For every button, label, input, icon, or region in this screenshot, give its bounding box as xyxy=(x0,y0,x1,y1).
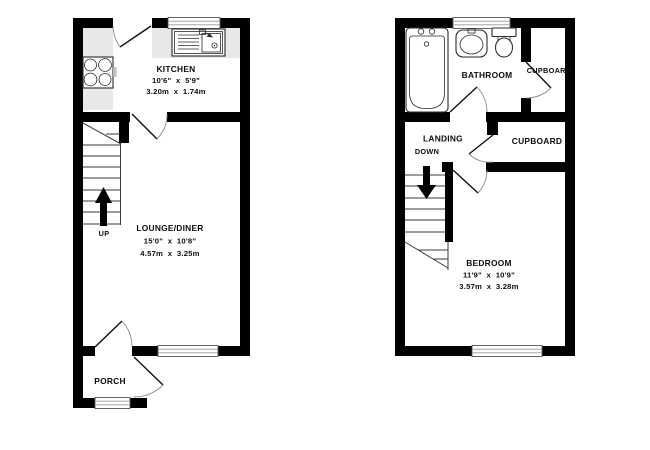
bedroom-door xyxy=(453,170,487,193)
first-floor-plan: BATHROOM CUPBOARD LANDING DOWN CUPBOARD … xyxy=(395,18,575,357)
toilet-icon xyxy=(492,28,516,57)
bathroom-label: BATHROOM xyxy=(462,70,513,80)
down-label: DOWN xyxy=(415,147,439,156)
kitchen-window xyxy=(168,18,220,29)
kitchen-dims-imperial: 10'6" x 5'9" xyxy=(152,76,200,85)
kitchen-door xyxy=(132,114,167,139)
kitchen-dims-metric: 3.20m x 1.74m xyxy=(146,87,205,96)
sink-icon xyxy=(172,29,225,56)
basin-icon xyxy=(456,29,487,58)
lounge-dims-metric: 4.57m x 3.25m xyxy=(140,249,199,258)
porch-label: PORCH xyxy=(94,376,126,386)
lounge-label: LOUNGE/DINER xyxy=(136,223,203,233)
down-arrow-icon xyxy=(417,166,436,199)
cupboard-top-label: CUPBOARD xyxy=(527,66,572,75)
ground-floor-plan: KITCHEN 10'6" x 5'9" 3.20m x 1.74m LOUNG… xyxy=(73,18,250,409)
cupboard-mid-door xyxy=(469,135,493,162)
kitchen-label: KITCHEN xyxy=(157,64,196,74)
bathroom-window xyxy=(453,18,510,29)
up-arrow-icon xyxy=(95,187,112,226)
landing-label: LANDING xyxy=(423,134,463,144)
stairs-up xyxy=(83,123,121,226)
floorplan-page: KITCHEN 10'6" x 5'9" 3.20m x 1.74m LOUNG… xyxy=(0,0,650,450)
bedroom-dims-imperial: 11'9" x 10'9" xyxy=(463,271,515,280)
bedroom-label: BEDROOM xyxy=(466,258,512,268)
cupboard-mid-label: CUPBOARD xyxy=(512,136,562,146)
up-label: UP xyxy=(99,229,110,238)
stairs-down xyxy=(405,166,448,270)
bathroom-door xyxy=(450,87,487,112)
lounge-dims-imperial: 15'0" x 10'8" xyxy=(144,237,197,246)
bathtub-icon xyxy=(406,28,448,112)
porch-door xyxy=(134,357,163,397)
bedroom-dims-metric: 3.57m x 3.28m xyxy=(459,282,518,291)
back-door xyxy=(113,26,151,47)
lounge-window xyxy=(158,346,218,357)
floorplan-canvas: KITCHEN 10'6" x 5'9" 3.20m x 1.74m LOUNG… xyxy=(0,0,650,450)
stove-icon xyxy=(83,57,117,88)
porch-window xyxy=(95,398,130,409)
bedroom-window xyxy=(472,346,542,357)
front-door xyxy=(95,321,132,347)
